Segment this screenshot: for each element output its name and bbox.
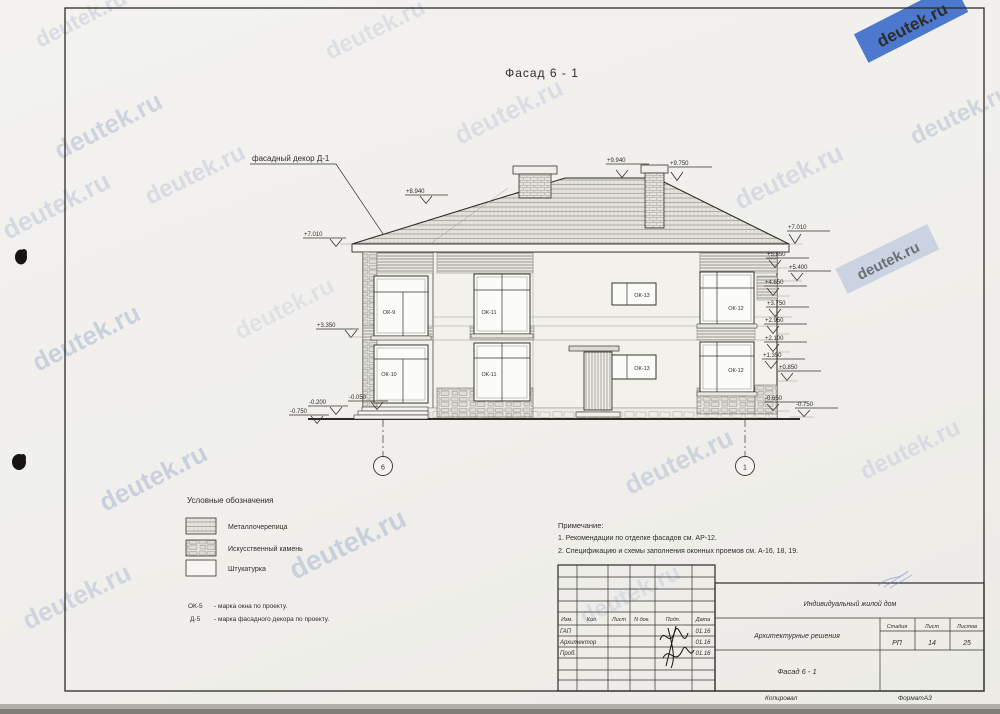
- stamp-stage-label: Стадия: [887, 624, 908, 630]
- elevation-value: +0.850: [779, 365, 798, 371]
- window-ok13-upper: ОК-13: [612, 283, 656, 305]
- watermark-text: deutek.ru: [230, 272, 339, 345]
- elevation-value: +5.400: [789, 265, 808, 271]
- eaves-band: [352, 244, 789, 252]
- legend-swatch-stone: [186, 540, 216, 556]
- stamp-sheet-value: 14: [928, 640, 936, 647]
- legend-title: Условные обозначения: [187, 496, 273, 505]
- copied-label: Копировал: [765, 695, 798, 702]
- elevation-mark: -0.750: [289, 409, 329, 424]
- watermark-text: deutek.ru: [17, 557, 135, 635]
- window-label: ОК-12: [728, 306, 743, 312]
- window-label: ОК-11: [481, 372, 496, 378]
- legend-mark-code: ОК-5: [188, 603, 203, 610]
- legend-mark-desc: - марка фасадного декора по проекту.: [214, 616, 329, 623]
- watermark-text: deutek.ru: [856, 414, 965, 486]
- notes-title: Примечание:: [558, 521, 604, 530]
- watermark-text: deutek.ru: [94, 437, 212, 517]
- scan-edge-shadow: [0, 704, 1000, 709]
- elevation-value: +7.010: [304, 232, 323, 238]
- stamp-set-name: Архитектурные решения: [753, 633, 840, 640]
- watermark-text: deutek.ru: [449, 72, 567, 150]
- watermark-text: deutek.ru: [729, 137, 847, 215]
- window-ok11-lower: ОК-11: [474, 343, 530, 401]
- watermark-text: deutek.ru: [0, 165, 115, 245]
- elevation-value: +2.100: [765, 336, 784, 342]
- elevation-value: -0.750: [796, 402, 814, 408]
- window-ok12-upper: ОК-12: [697, 272, 757, 328]
- window-ok13-lower: ОК-13: [612, 355, 656, 379]
- watermark-text: deutek.ru: [141, 139, 250, 211]
- stamp-role: ГАП: [560, 629, 572, 635]
- watermark-text: deutek.ru: [619, 422, 737, 500]
- window-ok10: ОК-10: [374, 345, 428, 403]
- elevation-value: +1.350: [763, 353, 782, 359]
- elevation-value: -0.750: [290, 409, 308, 415]
- stamp-col-data: Дата: [695, 617, 711, 623]
- legend-swatch-plaster: [186, 560, 216, 576]
- chimney-left: [513, 166, 557, 198]
- format-label: ФорматА3: [898, 695, 932, 702]
- stamp-col-list: Лист: [611, 617, 627, 623]
- window-ok11-upper: ОК-11: [471, 274, 533, 338]
- stamp-col-podp: Подп.: [666, 617, 681, 623]
- elevation-value: +9.750: [670, 161, 689, 167]
- axis-1: 1: [736, 419, 755, 476]
- legend-mark-code: Д-5: [190, 616, 201, 623]
- elevation-value: +5.850: [767, 252, 786, 258]
- legend-swatch-metal-tile: [186, 518, 216, 534]
- elevation-mark: +7.010: [787, 225, 830, 244]
- watermark-badge: deutek.ru: [854, 0, 968, 63]
- stamp-date: 01.16: [695, 651, 711, 657]
- legend-item-label: Искусственный камень: [228, 545, 303, 553]
- watermark-badge: deutek.ru: [835, 224, 939, 294]
- watermark-text: deutek.ru: [906, 79, 1000, 151]
- elevation-mark: +9.750: [669, 161, 712, 181]
- elevation-value: +9.940: [607, 158, 626, 164]
- door-canopy: [569, 346, 619, 351]
- stamp-sheet-label: Лист: [924, 624, 940, 630]
- window-label: ОК-11: [481, 310, 496, 316]
- elevation-mark: -0.200: [308, 400, 348, 415]
- elevation-mark: +3.350: [316, 323, 363, 338]
- stamp-col-ndok: N док.: [634, 617, 650, 623]
- stamp-project-name: Индивидуальный жилой дом: [804, 600, 897, 608]
- facade-drawing-canvas: deutek.ru deutek.ru deutek.ru deutek.ru …: [0, 0, 1000, 714]
- watermark-text: deutek.ru: [27, 297, 145, 377]
- stamp-date: 01.16: [695, 640, 711, 646]
- watermark-text: deutek.ru: [49, 85, 167, 165]
- axis-label: 1: [743, 465, 747, 472]
- stamp-col-kol: Кол.: [587, 617, 598, 623]
- elevation-mark: -0.750: [790, 402, 838, 417]
- hole-punch: [12, 454, 26, 470]
- roof: [352, 178, 789, 244]
- page-title: Фасад 6 - 1: [505, 66, 579, 80]
- decor-band: [437, 253, 533, 273]
- notes-line: 1. Рекомендации по отделке фасадов см. А…: [558, 535, 717, 542]
- stamp-sheets-value: 25: [962, 640, 971, 647]
- window-label: ОК-12: [728, 368, 743, 374]
- decor-band: [700, 253, 777, 273]
- stamp-role: Проб.: [560, 651, 576, 657]
- elevation-mark: +0.850: [777, 365, 821, 381]
- stamp-role: Архитектор: [559, 640, 597, 646]
- legend-item-label: Металлочерепица: [228, 524, 288, 531]
- notes-line: 2. Спецификацию и схемы заполнения оконн…: [558, 548, 798, 555]
- window-label: ОК-9: [383, 310, 395, 316]
- elevation-mark: +7.010: [303, 232, 352, 247]
- elevation-value: +8.940: [406, 189, 425, 195]
- legend-mark-desc: - марка окна по проекту.: [214, 603, 287, 610]
- elevation-value: +3.350: [317, 323, 336, 329]
- elevation-mark: +5.400: [777, 265, 831, 281]
- elevation-mark: +8.940: [405, 189, 448, 204]
- window-ok12-lower: ОК-12: [697, 342, 757, 396]
- stamp-sheets-label: Листов: [956, 624, 977, 630]
- elevation-value: +2.950: [765, 318, 784, 324]
- elevation-value: +3.750: [767, 301, 786, 307]
- entrance-steps: [354, 407, 428, 419]
- elevation-value: -0.200: [309, 400, 327, 406]
- stamp-col-izm: Изм.: [561, 617, 573, 623]
- elevation-value: +4.650: [765, 280, 784, 286]
- elevation-value: -0.050: [349, 395, 367, 401]
- stamp-drawing-name: Фасад 6 - 1: [777, 667, 816, 676]
- scan-edge-shadow: [0, 709, 1000, 714]
- legend-item-label: Штукатурка: [228, 566, 266, 573]
- facade: ОК-9 ОК-11 ОК-13 ОК-12 ОК-10: [308, 165, 800, 419]
- decor-band: [377, 253, 433, 273]
- axis-label: 6: [381, 465, 385, 472]
- pencil-mark: [878, 571, 912, 588]
- axis-6: 6: [374, 419, 393, 476]
- window-ok9: ОК-9: [371, 276, 431, 340]
- window-label: ОК-10: [381, 372, 396, 378]
- decor-label: фасадный декор Д-1: [252, 154, 330, 163]
- chimney-right: [641, 165, 668, 228]
- window-label: ОК-13: [634, 293, 649, 299]
- hole-punch: [15, 249, 27, 265]
- notes: Примечание: 1. Рекомендации по отделке ф…: [558, 521, 798, 555]
- window-label: ОК-13: [634, 366, 649, 372]
- stamp-stage-value: РП: [892, 640, 903, 647]
- elevation-value: +7.010: [788, 225, 807, 231]
- stamp-date: 01.16: [695, 629, 711, 635]
- elevation-value: -0.650: [765, 396, 783, 402]
- drawing-sheet: deutek.ru deutek.ru deutek.ru deutek.ru …: [0, 0, 1000, 714]
- watermark-text: deutek.ru: [284, 502, 411, 585]
- watermark-text: deutek.ru: [321, 0, 430, 65]
